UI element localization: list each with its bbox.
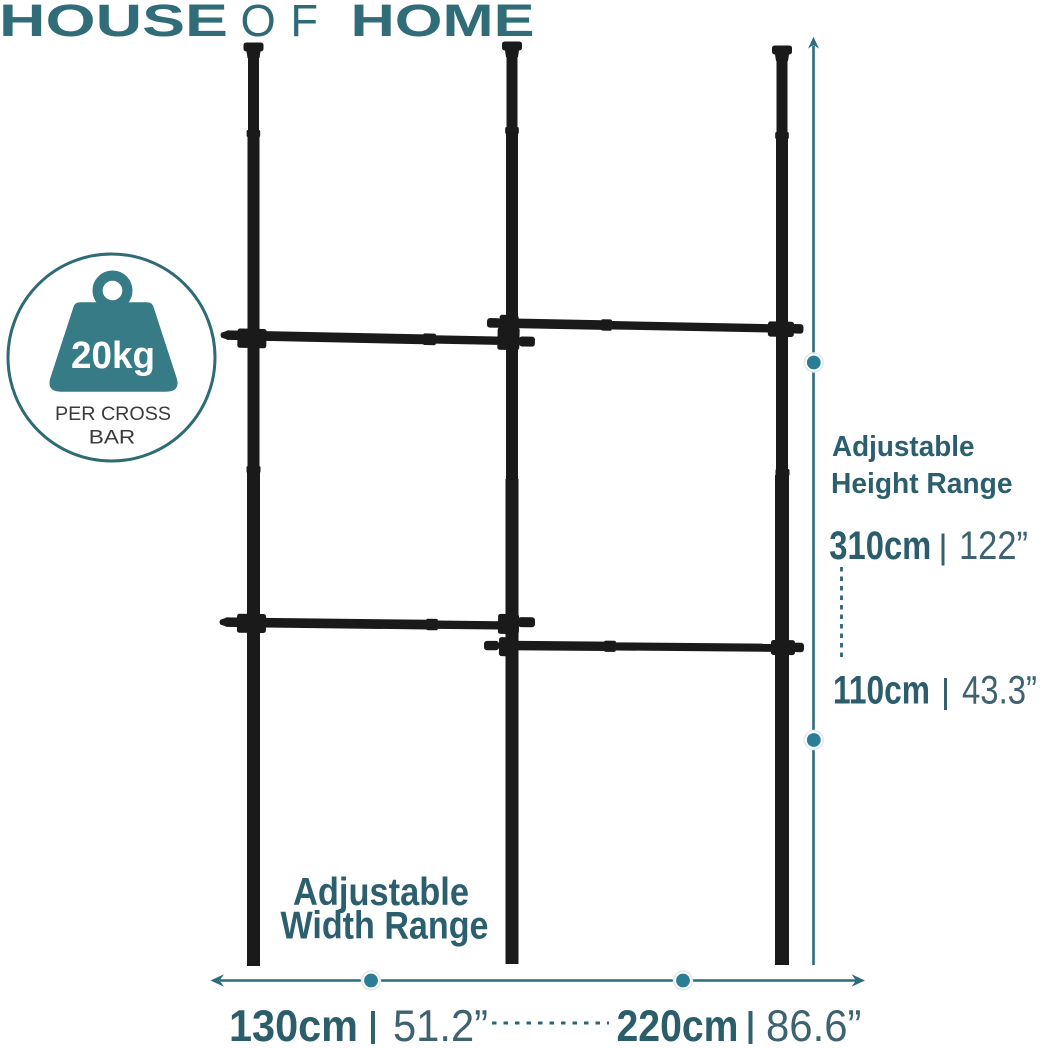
svg-text:51.2”: 51.2” xyxy=(393,1002,488,1048)
svg-text:PER CROSS: PER CROSS xyxy=(55,403,171,425)
svg-text:310cm: 310cm xyxy=(829,524,931,568)
svg-text:110cm: 110cm xyxy=(833,669,930,713)
svg-text:86.6”: 86.6” xyxy=(766,1002,862,1048)
svg-text:122”: 122” xyxy=(959,524,1028,568)
svg-text:Adjustable: Adjustable xyxy=(832,431,975,463)
svg-text:BAR: BAR xyxy=(89,427,136,449)
svg-text:HOUSE: HOUSE xyxy=(0,0,228,46)
svg-text:Width Range: Width Range xyxy=(281,905,489,948)
svg-text:Height Range: Height Range xyxy=(831,468,1013,500)
svg-text:220cm: 220cm xyxy=(617,1002,739,1048)
svg-text:130cm: 130cm xyxy=(229,1002,358,1048)
svg-text:HOME: HOME xyxy=(351,0,535,46)
svg-text:43.3”: 43.3” xyxy=(962,669,1037,713)
svg-text:20kg: 20kg xyxy=(71,335,155,377)
